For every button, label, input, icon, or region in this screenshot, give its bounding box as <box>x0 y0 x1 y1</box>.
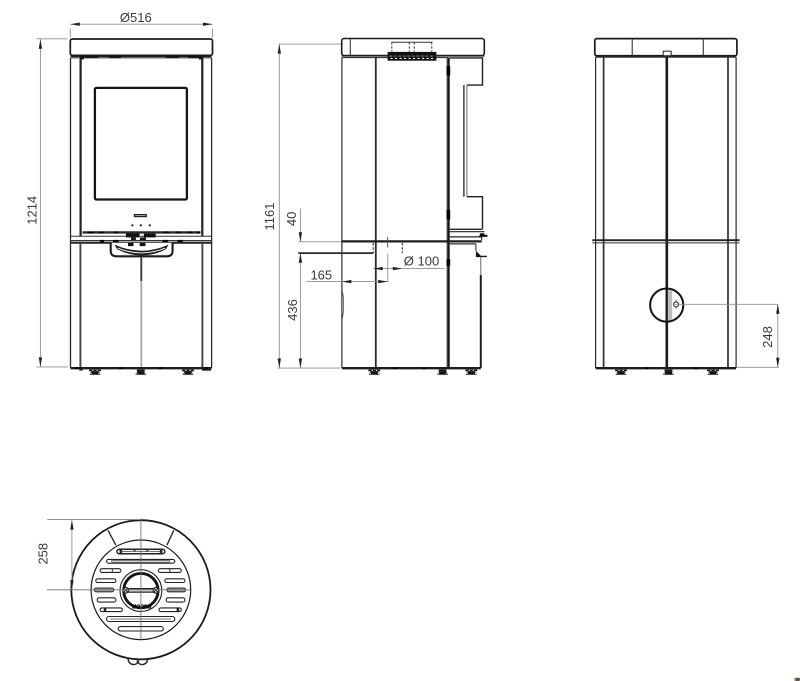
svg-text:258: 258 <box>35 543 50 565</box>
svg-text:1214: 1214 <box>25 196 40 225</box>
svg-text:Ø516: Ø516 <box>120 10 152 25</box>
svg-text:248: 248 <box>760 326 775 348</box>
svg-text:436: 436 <box>285 299 300 321</box>
svg-text:MORSØ: MORSØ <box>132 605 151 611</box>
svg-text:1161: 1161 <box>262 203 277 231</box>
svg-text:Ø 100: Ø 100 <box>404 253 439 268</box>
svg-text:165: 165 <box>310 267 332 282</box>
svg-text:40: 40 <box>284 212 299 226</box>
